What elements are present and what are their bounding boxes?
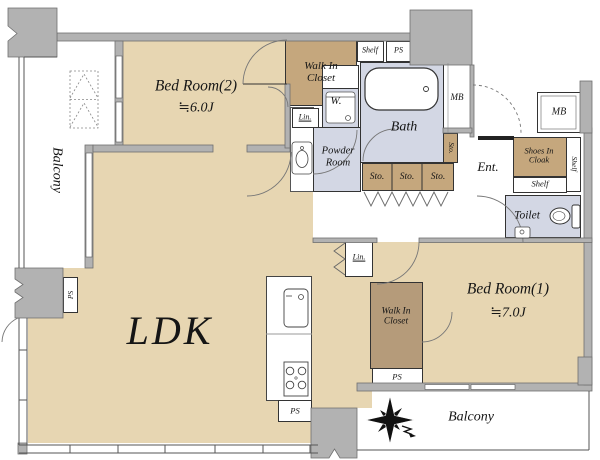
sto3-label: Sto. [431,172,446,182]
sto2-label: Sto. [400,172,415,182]
bedroom1-size-label: ≒7.0J [490,305,525,320]
balcony-bottom-label: Balcony [448,409,494,424]
bedroom1-label: Bed Room(1) [467,280,549,297]
walk-in-closet-top-label: Walk In Closet [290,60,352,84]
floor-plan: LDK Bed Room(2) ≒6.0J Bed Room(1) ≒7.0J … [0,0,600,460]
outdoor-unit-icon [70,71,98,128]
pillar-top-left [8,8,57,57]
bedroom2-label: Bed Room(2) [155,77,237,94]
pillar-bottom [311,408,357,458]
linen1-label: Lin. [299,114,312,123]
ps-top-label: PS [394,47,403,56]
toilet-label: Toilet [514,210,540,223]
door-swing-entrance [473,85,521,133]
ldk-label: LDK [127,309,214,353]
shelf-top-label: Shelf [362,47,378,56]
ps-bedroom1-label: PS [392,372,401,381]
room-ldk-floor-left [28,318,93,443]
compass-north-arrow [402,426,412,435]
pillar-left [15,268,63,318]
balcony-partition-swing [2,318,18,342]
mb1-label: MB [451,93,464,103]
entrance-sill [478,136,514,140]
bath-label: Bath [391,119,417,134]
shelf-bottom-label: Shelf [532,179,549,188]
room-bath-box [360,62,444,163]
powder-room-label: Powder Room [315,145,361,168]
walk-in-closet-bedroom1-label: Walk In Closet [371,307,421,328]
entrance-label: Ent. [477,160,498,174]
mb2-label: MB [552,107,566,118]
kitchen-counter [266,276,312,401]
pillar-mb2 [580,81,592,133]
ps-left-label: PS [66,291,74,299]
pillar-top-right [410,10,472,65]
linen2-label: Lin. [353,254,366,263]
washer-label: W. [331,95,342,107]
sto-small-label: Sto. [446,142,454,153]
bedroom2-size-label: ≒6.0J [178,100,213,115]
shoes-in-cloak-label: Shoes In Cloak [515,147,563,166]
shelf-vertical-label: Shelf [569,157,577,172]
compass-icon [366,396,416,444]
balcony-left-label: Balcony [49,147,64,193]
sto1-label: Sto. [370,172,385,182]
ps-kitchen-label: PS [290,406,299,415]
